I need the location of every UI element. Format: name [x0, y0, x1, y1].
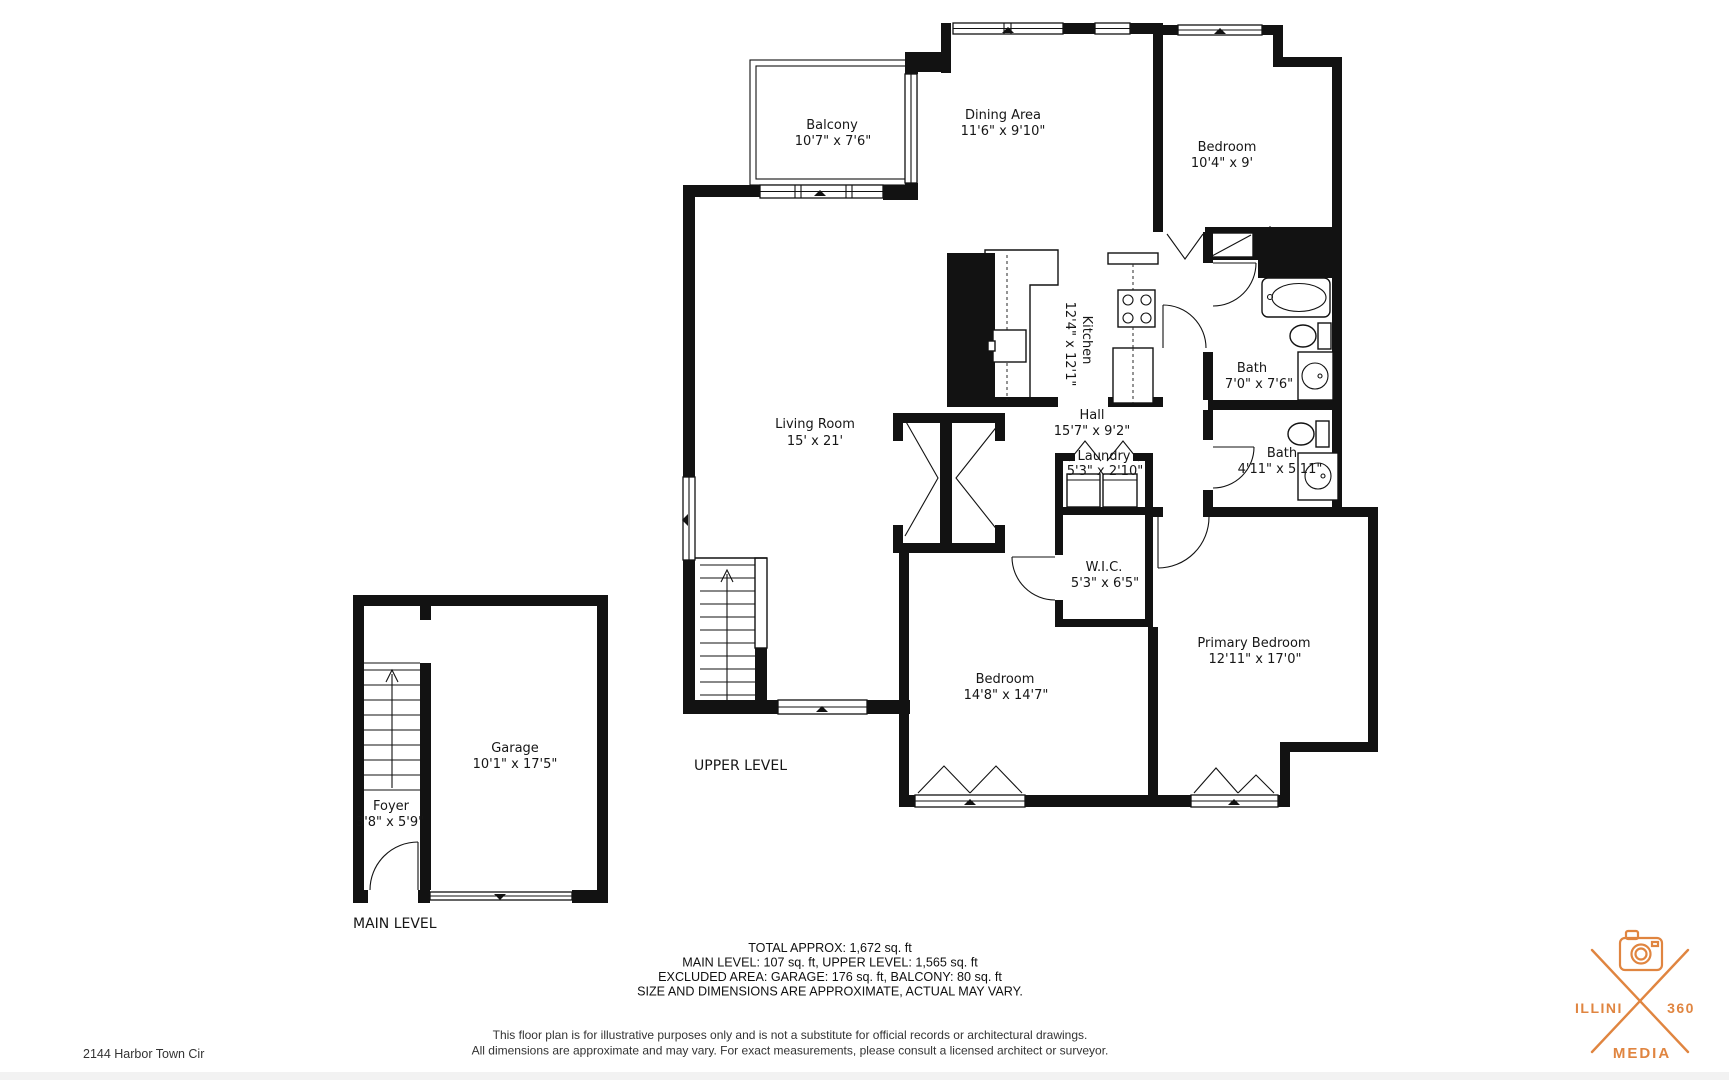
room-label-laundry: Laundry	[1078, 449, 1131, 464]
main-walls	[353, 595, 608, 903]
entry-door	[370, 842, 418, 890]
room-label-hall: Hall	[1080, 408, 1105, 423]
floorplan-canvas: Balcony 10'7" x 7'6" Dining Area 11'6" x…	[0, 0, 1729, 1080]
staircase-upper	[695, 558, 767, 712]
summary-note: SIZE AND DIMENSIONS ARE APPROXIMATE, ACT…	[637, 985, 1023, 999]
room-dims-primary: 12'11" x 17'0"	[1209, 652, 1302, 667]
room-label-dining: Dining Area	[965, 108, 1041, 123]
room-label-foyer: Foyer	[373, 799, 410, 814]
summary-total: TOTAL APPROX: 1,672 sq. ft	[748, 941, 912, 955]
room-dims-hall: 15'7" x 9'2"	[1054, 424, 1130, 439]
upper-level-label: UPPER LEVEL	[694, 758, 787, 774]
disclaimer-line2: All dimensions are approximate and may v…	[472, 1044, 1109, 1058]
room-dims-foyer: 3'8" x 5'9"	[356, 815, 424, 830]
room-dims-dining: 11'6" x 9'10"	[961, 124, 1046, 139]
bottom-strip	[0, 1072, 1729, 1080]
room-label-bedroom-top: Bedroom	[1198, 140, 1257, 155]
room-dims-living: 15' x 21'	[787, 434, 843, 449]
room-dims-bath-small: 4'11" x 5'11"	[1238, 462, 1323, 477]
logo-text-left: ILLINI	[1575, 1000, 1623, 1016]
room-dims-bedroom-mid: 14'8" x 14'7"	[964, 688, 1049, 703]
room-label-bath-small: Bath	[1267, 446, 1297, 461]
illini-360-media-logo: ILLINI 360 MEDIA	[1575, 931, 1695, 1062]
upper-level-plan: Balcony 10'7" x 7'6" Dining Area 11'6" x…	[682, 23, 1378, 807]
room-dims-wic: 5'3" x 6'5"	[1071, 576, 1139, 591]
camera-icon	[1620, 931, 1662, 970]
room-dims-bath-main: 7'0" x 7'6"	[1225, 377, 1293, 392]
room-dims-balcony: 10'7" x 7'6"	[795, 134, 871, 149]
room-dims-garage: 10'1" x 17'5"	[473, 757, 558, 772]
disclaimer-line1: This floor plan is for illustrative purp…	[493, 1028, 1088, 1042]
room-label-living: Living Room	[775, 417, 855, 432]
area-summary: TOTAL APPROX: 1,672 sq. ft MAIN LEVEL: 1…	[637, 941, 1023, 999]
room-label-wic: W.I.C.	[1086, 560, 1123, 575]
room-dims-bedroom-top: 10'4" x 9'	[1191, 156, 1253, 171]
main-level-label: MAIN LEVEL	[353, 916, 437, 932]
room-label-bedroom-mid: Bedroom	[976, 672, 1035, 687]
room-label-kitchen: Kitchen	[1079, 316, 1094, 365]
toilet-icon	[1318, 323, 1331, 349]
staircase-main	[364, 663, 420, 790]
room-label-primary: Primary Bedroom	[1197, 636, 1310, 651]
disclaimer: This floor plan is for illustrative purp…	[472, 1028, 1109, 1058]
address-label: 2144 Harbor Town Cir	[83, 1047, 204, 1061]
floorplan-page: Balcony 10'7" x 7'6" Dining Area 11'6" x…	[0, 0, 1729, 1080]
kitchen-sink	[993, 330, 1026, 362]
summary-excluded: EXCLUDED AREA: GARAGE: 176 sq. ft, BALCO…	[658, 970, 1002, 984]
room-labels-main: Garage 10'1" x 17'5" Foyer 3'8" x 5'9"	[356, 741, 557, 830]
logo-text-bottom: MEDIA	[1613, 1045, 1671, 1062]
toilet-icon	[1316, 421, 1329, 447]
room-label-bath-main: Bath	[1237, 361, 1267, 376]
main-level-plan: Garage 10'1" x 17'5" Foyer 3'8" x 5'9" M…	[353, 595, 608, 932]
logo-text-right: 360	[1667, 1000, 1695, 1016]
room-label-garage: Garage	[491, 741, 539, 756]
room-dims-kitchen: 12'4" x 12'1"	[1062, 302, 1077, 387]
room-label-balcony: Balcony	[806, 118, 858, 133]
room-dims-laundry: 5'3" x 2'10"	[1067, 464, 1143, 479]
summary-levels: MAIN LEVEL: 107 sq. ft, UPPER LEVEL: 1,5…	[682, 956, 978, 970]
